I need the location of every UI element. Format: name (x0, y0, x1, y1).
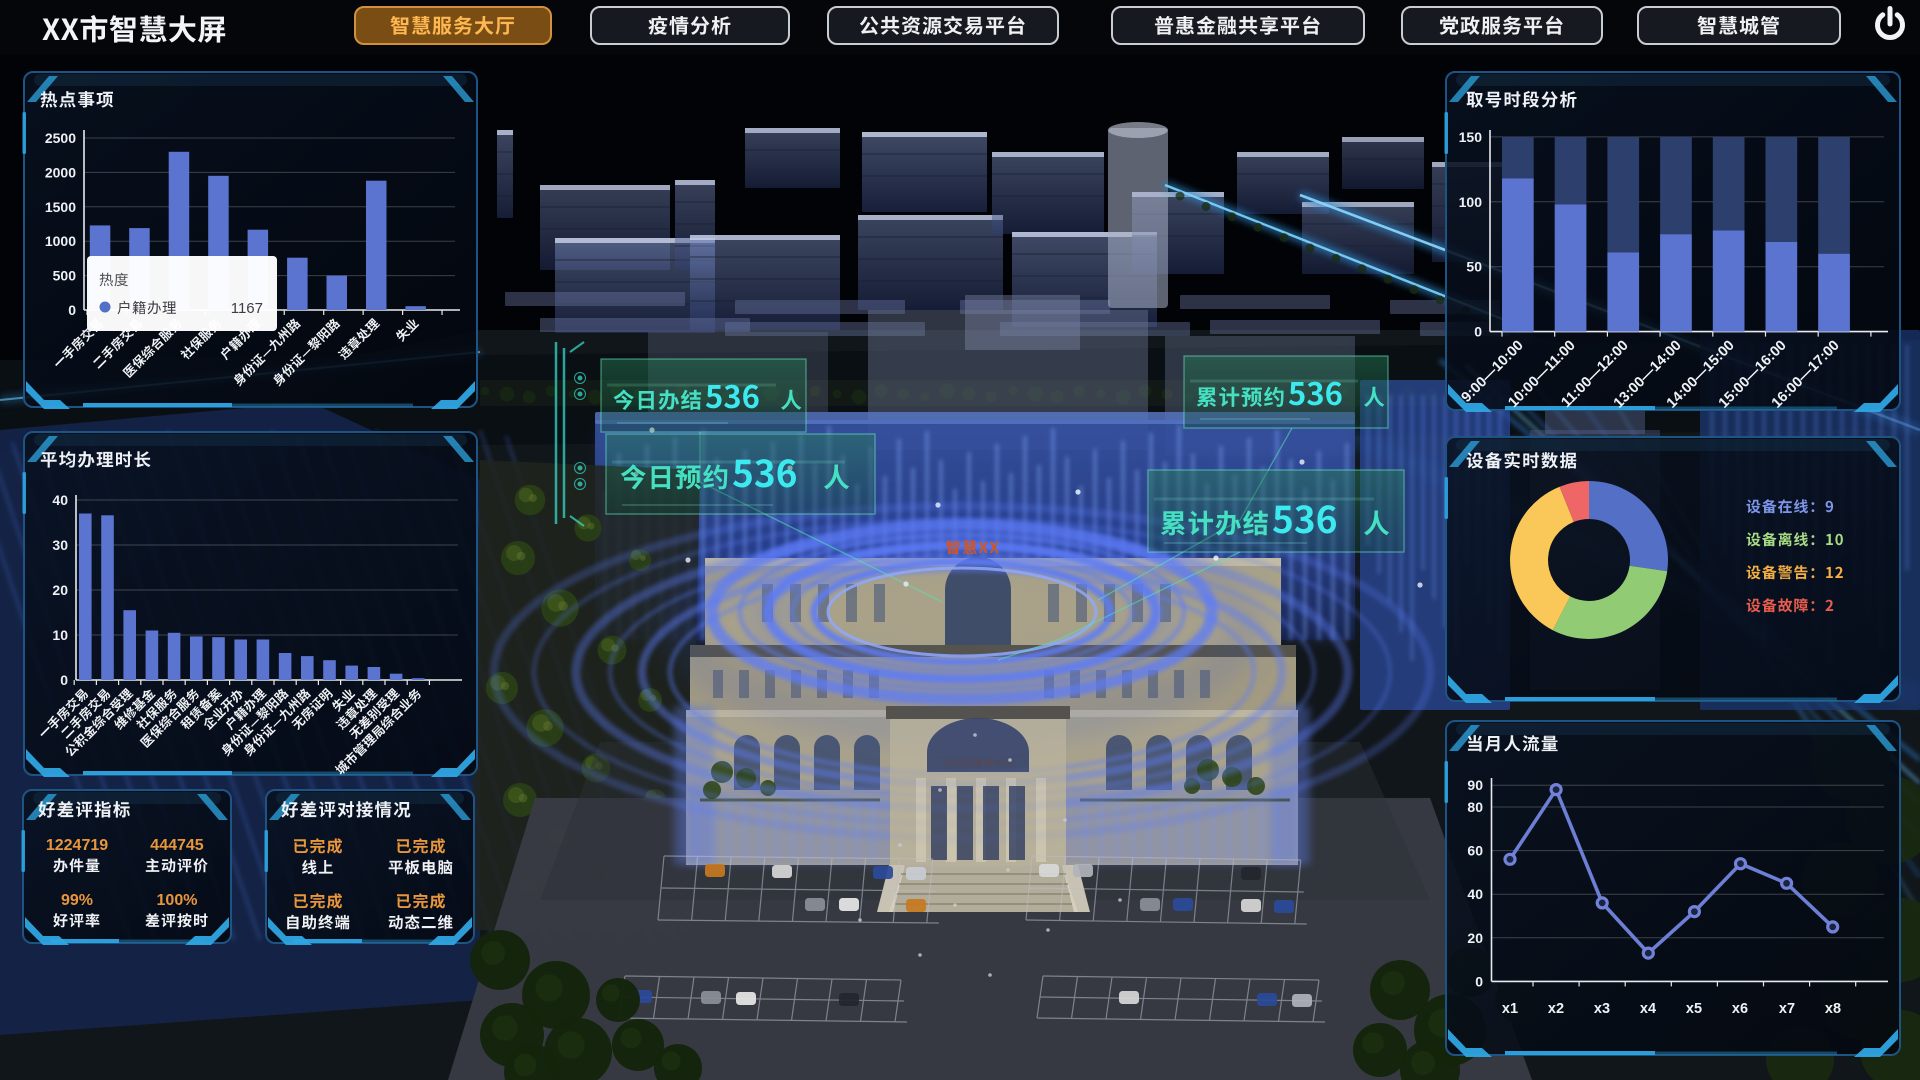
svg-text:1000: 1000 (45, 233, 76, 249)
svg-text:0: 0 (60, 672, 68, 688)
svg-text:40: 40 (52, 492, 68, 508)
svg-text:x4: x4 (1640, 1001, 1656, 1017)
svg-text:20: 20 (52, 582, 68, 598)
svg-text:x3: x3 (1594, 1001, 1610, 1017)
svg-text:50: 50 (1466, 259, 1482, 275)
svg-text:x5: x5 (1686, 1001, 1702, 1017)
svg-text:x6: x6 (1732, 1001, 1748, 1017)
svg-text:0: 0 (1475, 973, 1483, 989)
svg-text:80: 80 (1467, 799, 1483, 815)
svg-text:99%: 99% (61, 892, 93, 909)
svg-text:100: 100 (1459, 194, 1483, 210)
svg-text:90: 90 (1467, 777, 1483, 793)
svg-text:150: 150 (1459, 129, 1483, 145)
svg-text:1167: 1167 (231, 300, 263, 317)
svg-text:x7: x7 (1779, 1001, 1795, 1017)
svg-text:500: 500 (53, 268, 77, 284)
svg-text:20: 20 (1467, 930, 1483, 946)
svg-text:444745: 444745 (150, 837, 203, 854)
svg-text:0: 0 (1474, 324, 1482, 340)
svg-text:1500: 1500 (45, 199, 76, 215)
svg-text:40: 40 (1467, 886, 1483, 902)
svg-text:x8: x8 (1825, 1001, 1841, 1017)
svg-text:1224719: 1224719 (46, 837, 108, 854)
svg-text:0: 0 (68, 302, 76, 318)
svg-text:x2: x2 (1548, 1001, 1564, 1017)
svg-text:2500: 2500 (45, 130, 76, 146)
svg-text:x1: x1 (1502, 1001, 1518, 1017)
svg-text:100%: 100% (157, 892, 198, 909)
svg-text:10: 10 (52, 627, 68, 643)
svg-text:2000: 2000 (45, 164, 76, 180)
svg-text:30: 30 (52, 537, 68, 553)
svg-text:60: 60 (1467, 843, 1483, 859)
